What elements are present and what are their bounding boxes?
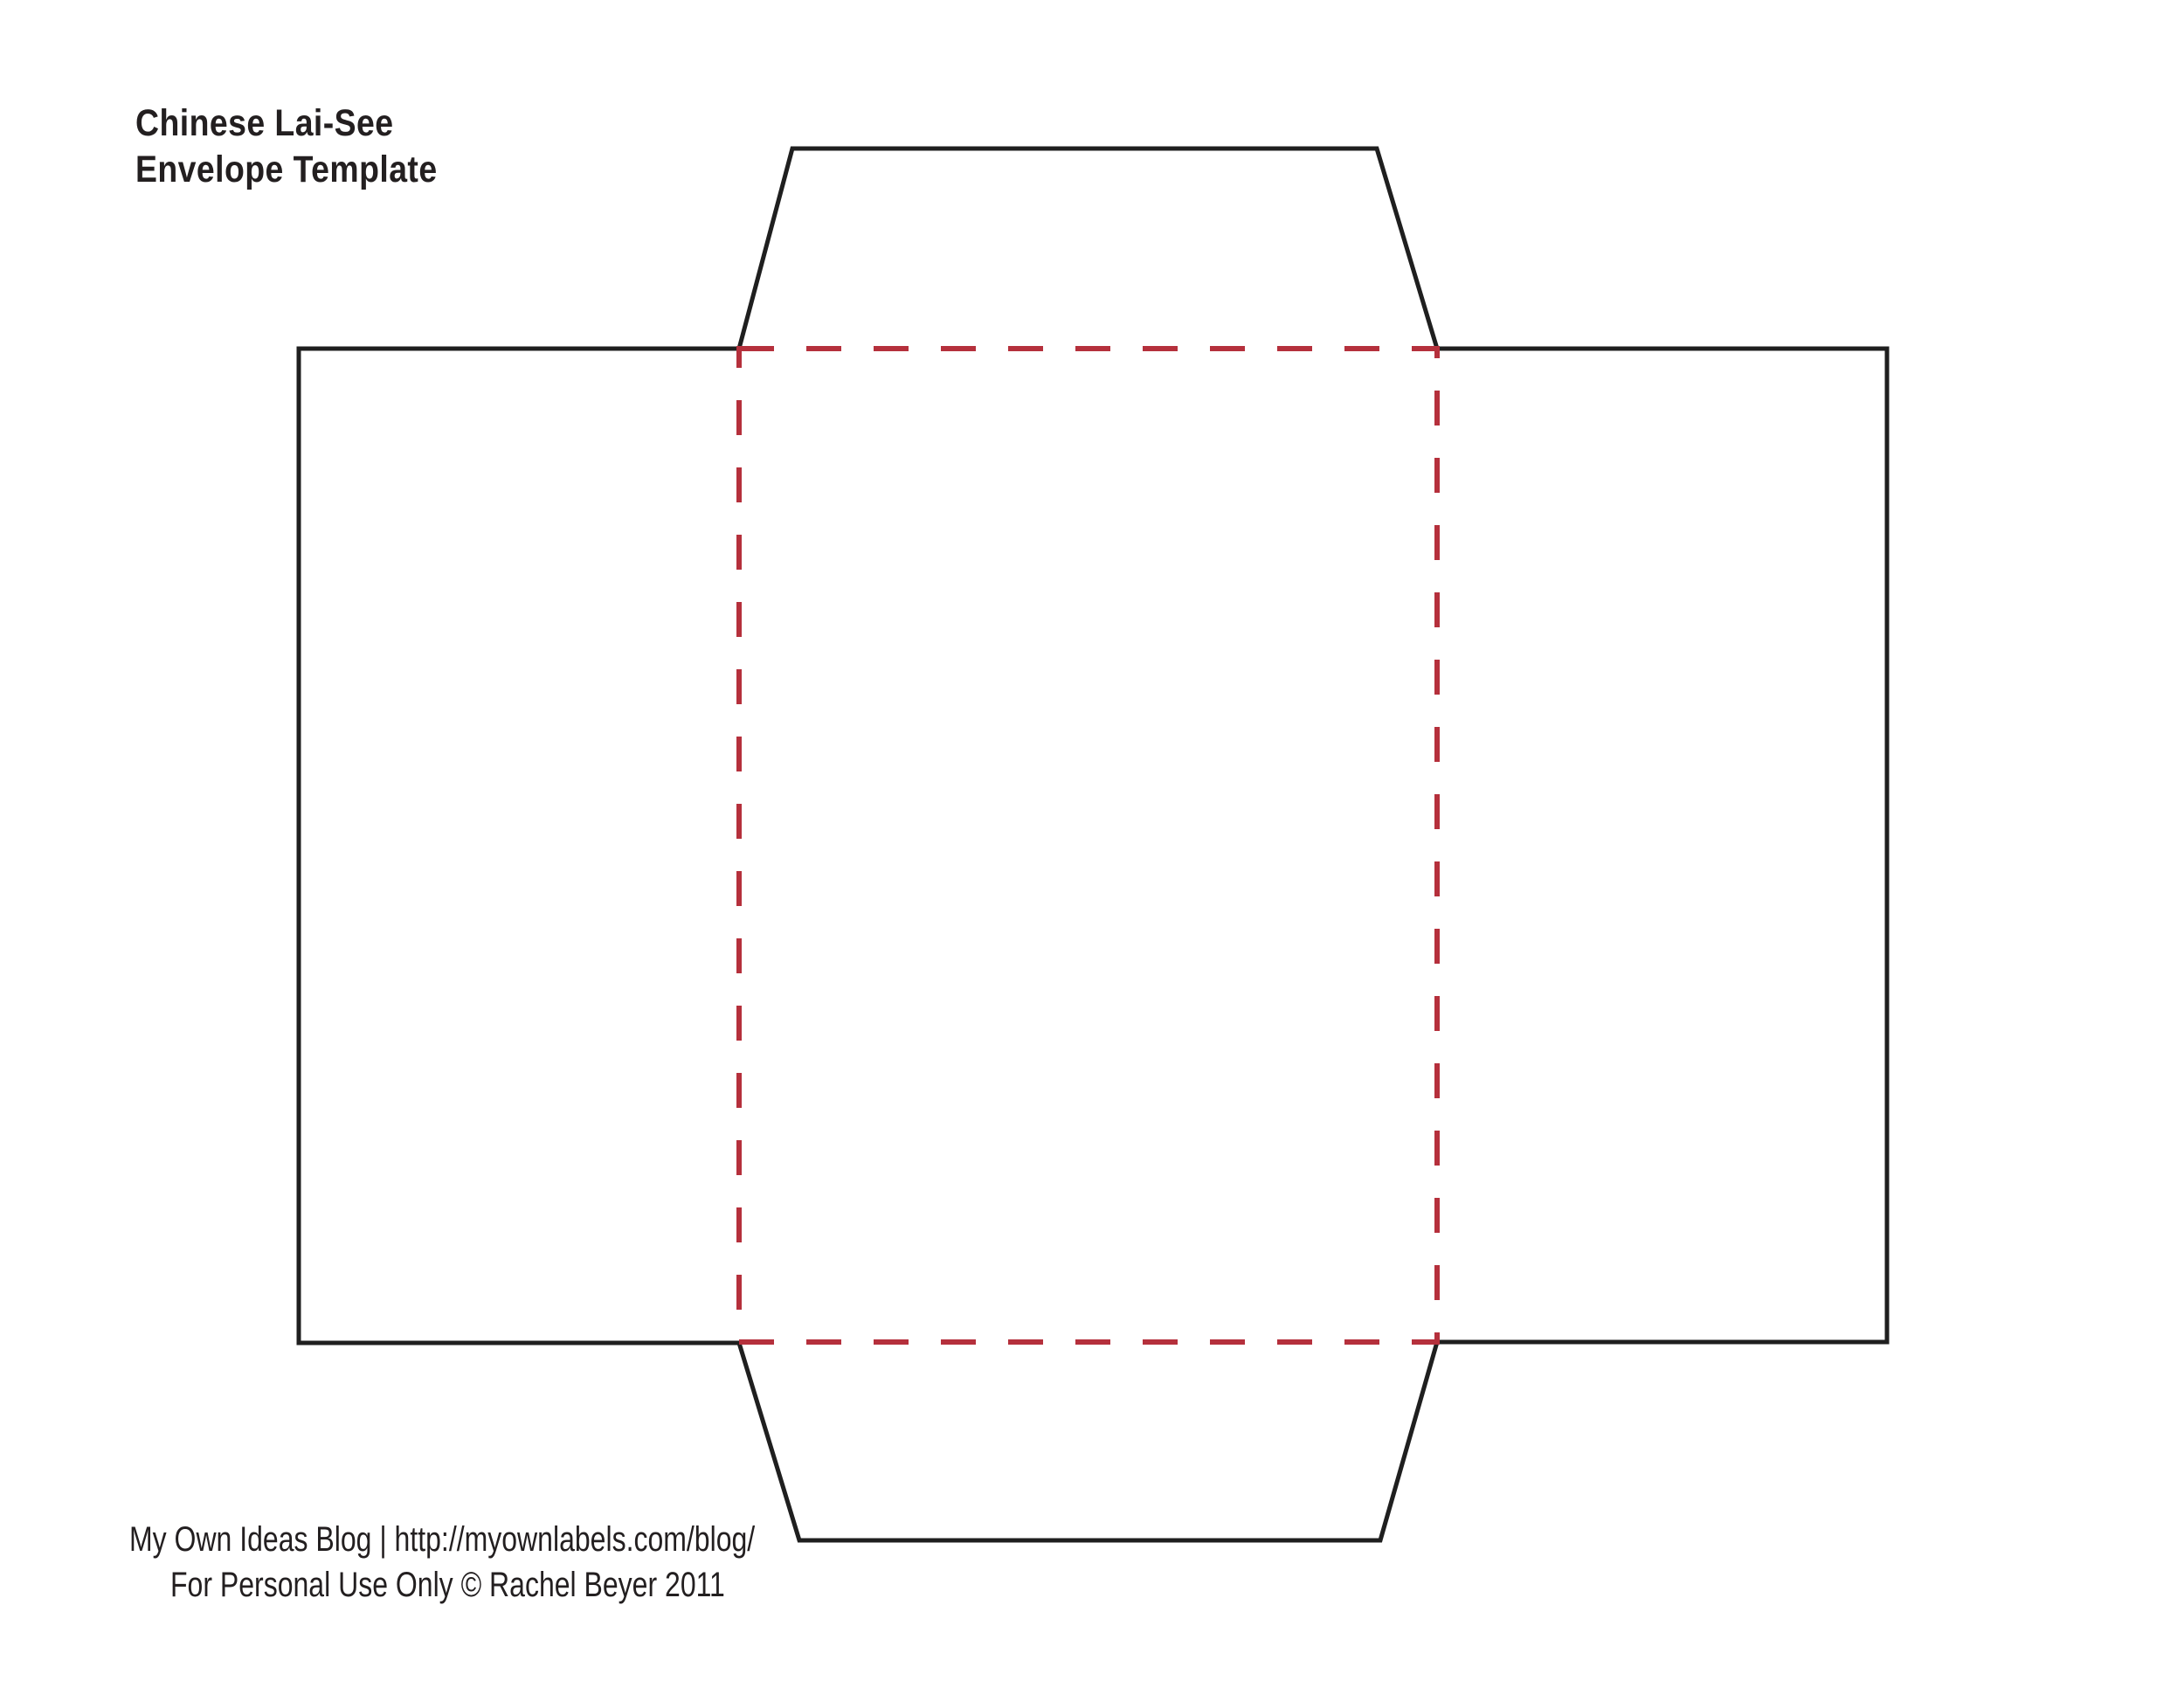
envelope-cut-outline [299, 149, 1887, 1540]
fold-lines-rectangle [739, 349, 1437, 1342]
footer-credit-line: My Own Ideas Blog | http://myownlabels.c… [129, 1522, 755, 1557]
envelope-template-diagram [0, 0, 2184, 1688]
page: Chinese Lai-See Envelope Template My Own… [0, 0, 2184, 1688]
footer-license-line: For Personal Use Only © Rachel Beyer 201… [170, 1567, 725, 1602]
